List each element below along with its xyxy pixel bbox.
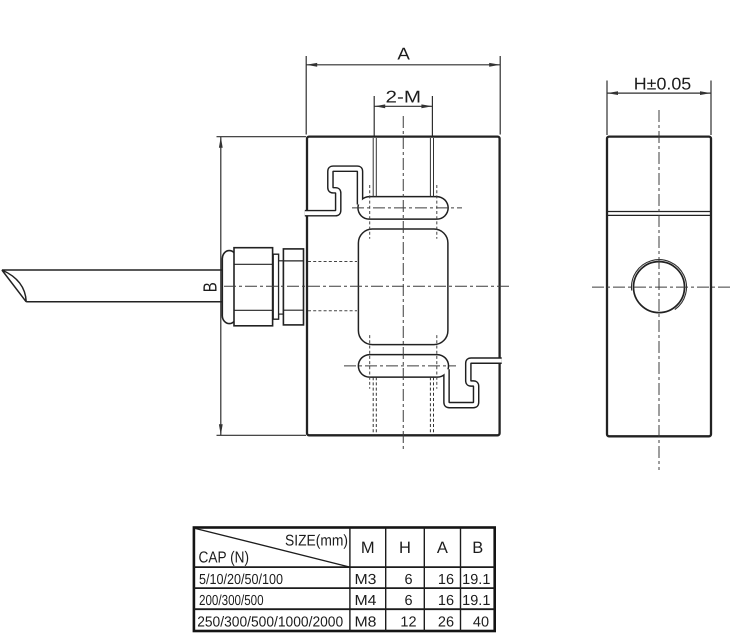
svg-text:12: 12 [400, 615, 416, 631]
svg-text:19.1: 19.1 [462, 572, 490, 588]
svg-text:H: H [399, 539, 411, 557]
svg-text:B: B [472, 539, 483, 557]
svg-text:250/300/500/1000/2000: 250/300/500/1000/2000 [197, 615, 343, 631]
svg-text:26: 26 [438, 615, 454, 631]
svg-text:M3: M3 [355, 572, 377, 588]
svg-text:6: 6 [404, 572, 412, 588]
svg-text:200/300/500: 200/300/500 [199, 593, 264, 609]
svg-text:CAP (N): CAP (N) [199, 550, 250, 567]
svg-text:16: 16 [438, 572, 454, 588]
svg-text:A: A [397, 45, 410, 64]
svg-text:M: M [361, 539, 375, 557]
svg-text:M4: M4 [355, 593, 377, 609]
svg-text:6: 6 [404, 593, 412, 609]
svg-text:2-M: 2-M [386, 88, 422, 107]
svg-text:A: A [437, 539, 448, 557]
svg-text:SIZE(mm): SIZE(mm) [285, 533, 348, 550]
svg-text:5/10/20/50/100: 5/10/20/50/100 [199, 572, 283, 588]
svg-text:B: B [201, 282, 222, 292]
svg-text:H±0.05: H±0.05 [634, 74, 692, 93]
svg-text:40: 40 [473, 615, 489, 631]
svg-text:16: 16 [438, 593, 454, 609]
svg-text:19.1: 19.1 [462, 593, 490, 609]
svg-text:M8: M8 [355, 615, 377, 631]
